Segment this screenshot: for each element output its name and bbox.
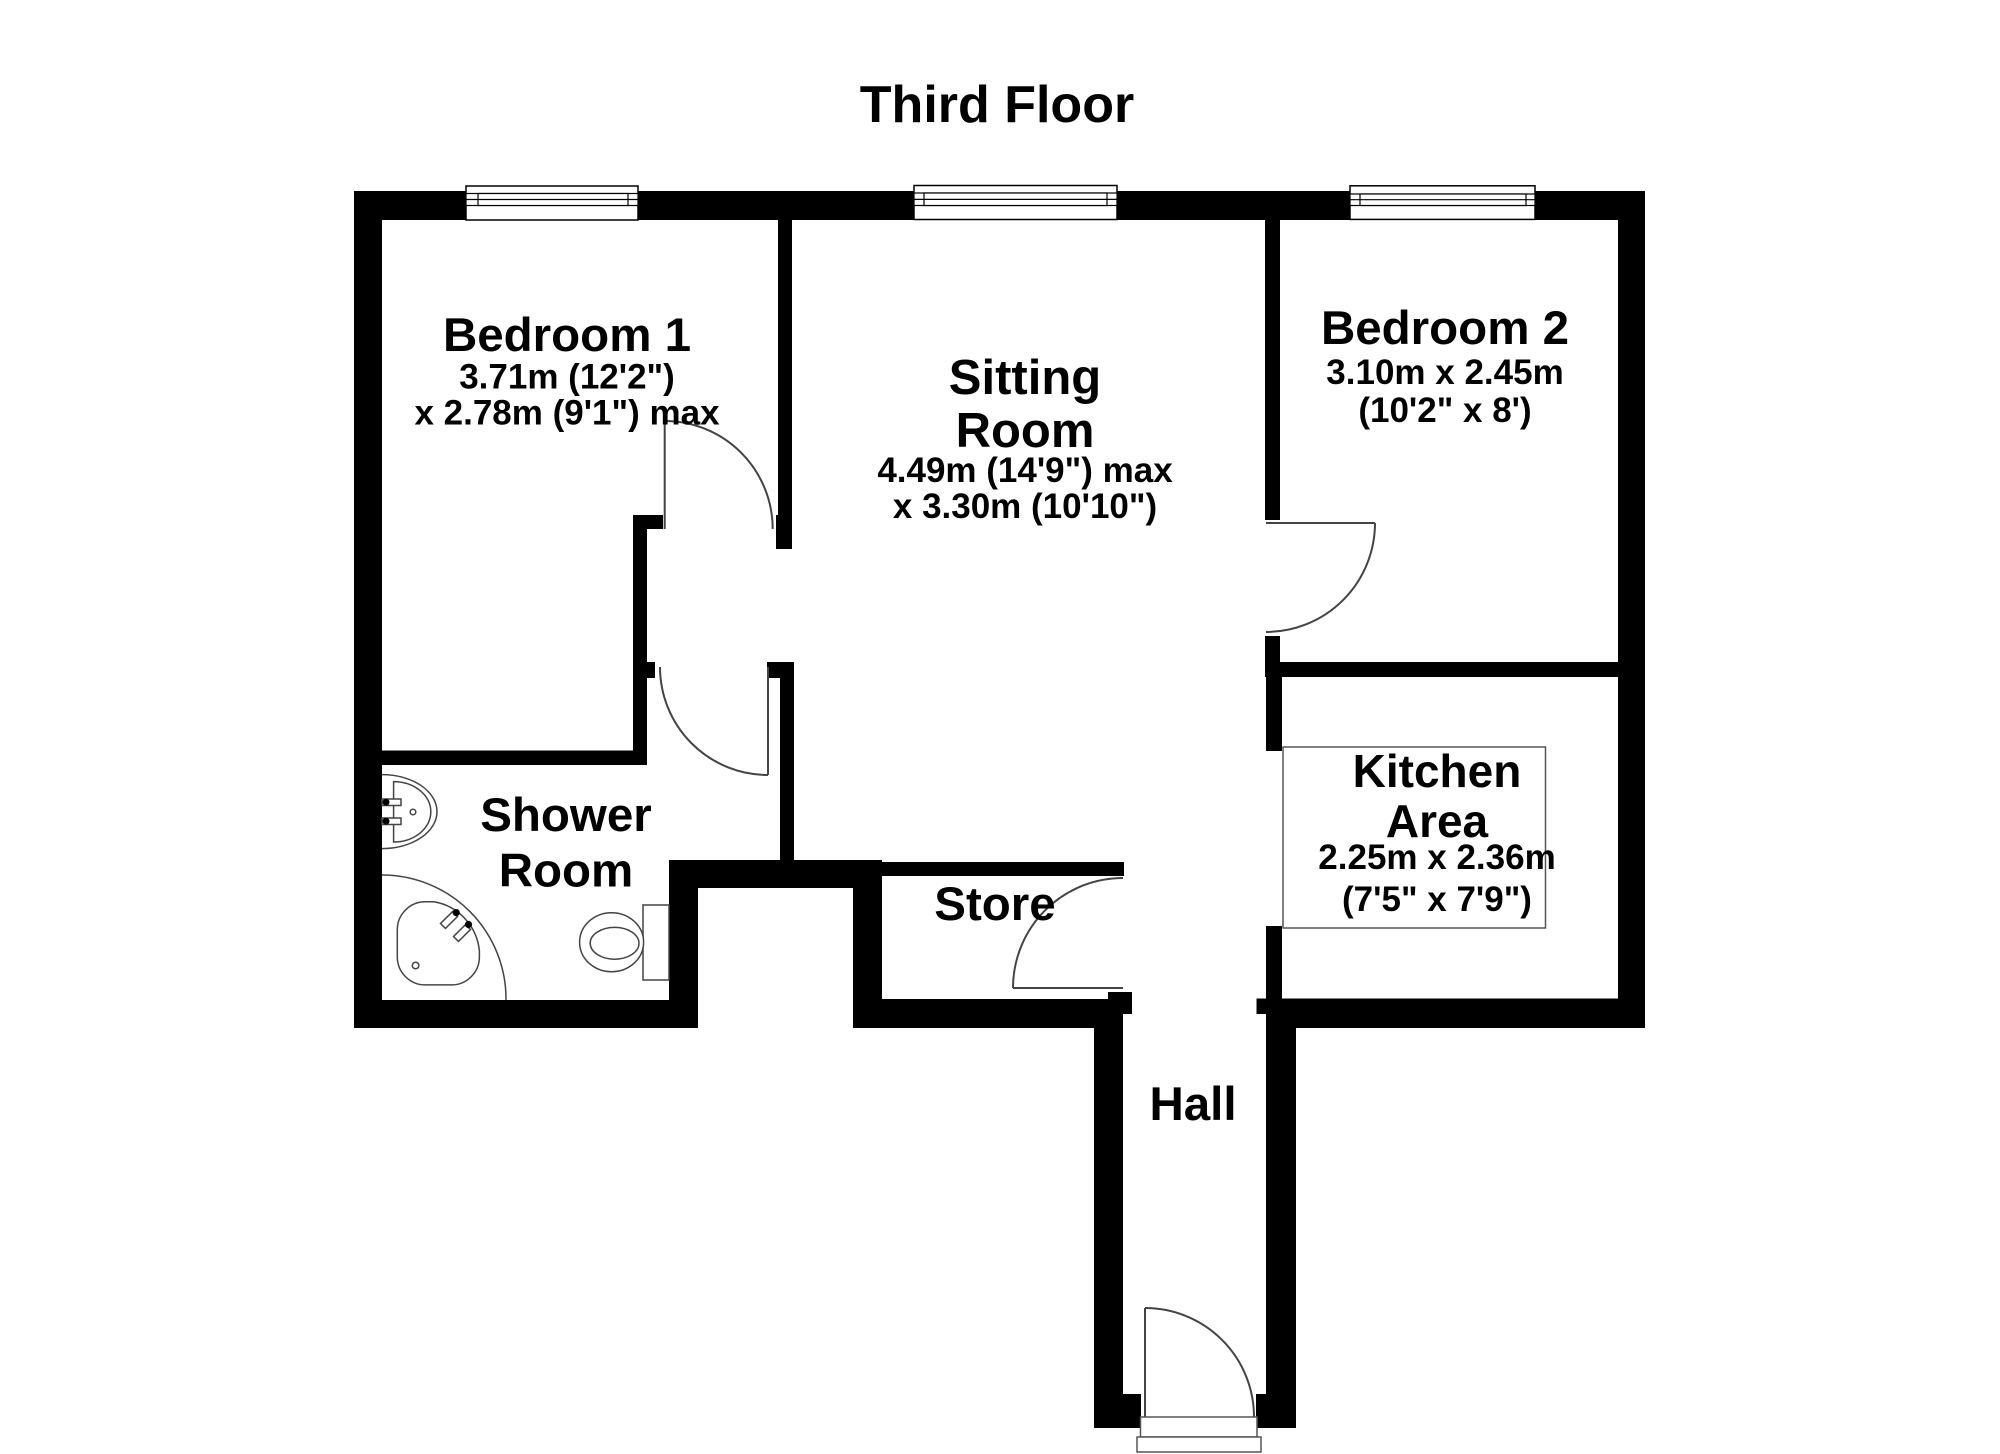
svg-text:Bedroom 1: Bedroom 1 [443, 309, 691, 362]
svg-text:Room: Room [956, 404, 1095, 458]
svg-text:Sitting: Sitting [949, 351, 1101, 405]
svg-text:Hall: Hall [1149, 1078, 1236, 1131]
svg-text:Store: Store [934, 878, 1055, 931]
svg-text:(7'5" x 7'9"): (7'5" x 7'9") [1342, 880, 1532, 919]
svg-text:Shower: Shower [480, 789, 652, 842]
svg-text:Room: Room [499, 845, 634, 898]
svg-text:(10'2" x 8'): (10'2" x 8') [1358, 391, 1531, 430]
svg-text:Kitchen: Kitchen [1353, 745, 1522, 797]
svg-text:3.10m x 2.45m: 3.10m x 2.45m [1326, 353, 1563, 392]
svg-text:Third Floor: Third Floor [860, 76, 1134, 134]
svg-text:2.25m x 2.36m: 2.25m x 2.36m [1318, 838, 1555, 877]
svg-text:x 3.30m (10'10"): x 3.30m (10'10") [893, 487, 1157, 526]
svg-text:Bedroom 2: Bedroom 2 [1321, 302, 1569, 355]
svg-text:4.49m (14'9") max: 4.49m (14'9") max [877, 451, 1173, 490]
svg-text:3.71m (12'2"): 3.71m (12'2") [459, 358, 675, 397]
svg-text:x 2.78m (9'1") max: x 2.78m (9'1") max [414, 394, 720, 433]
